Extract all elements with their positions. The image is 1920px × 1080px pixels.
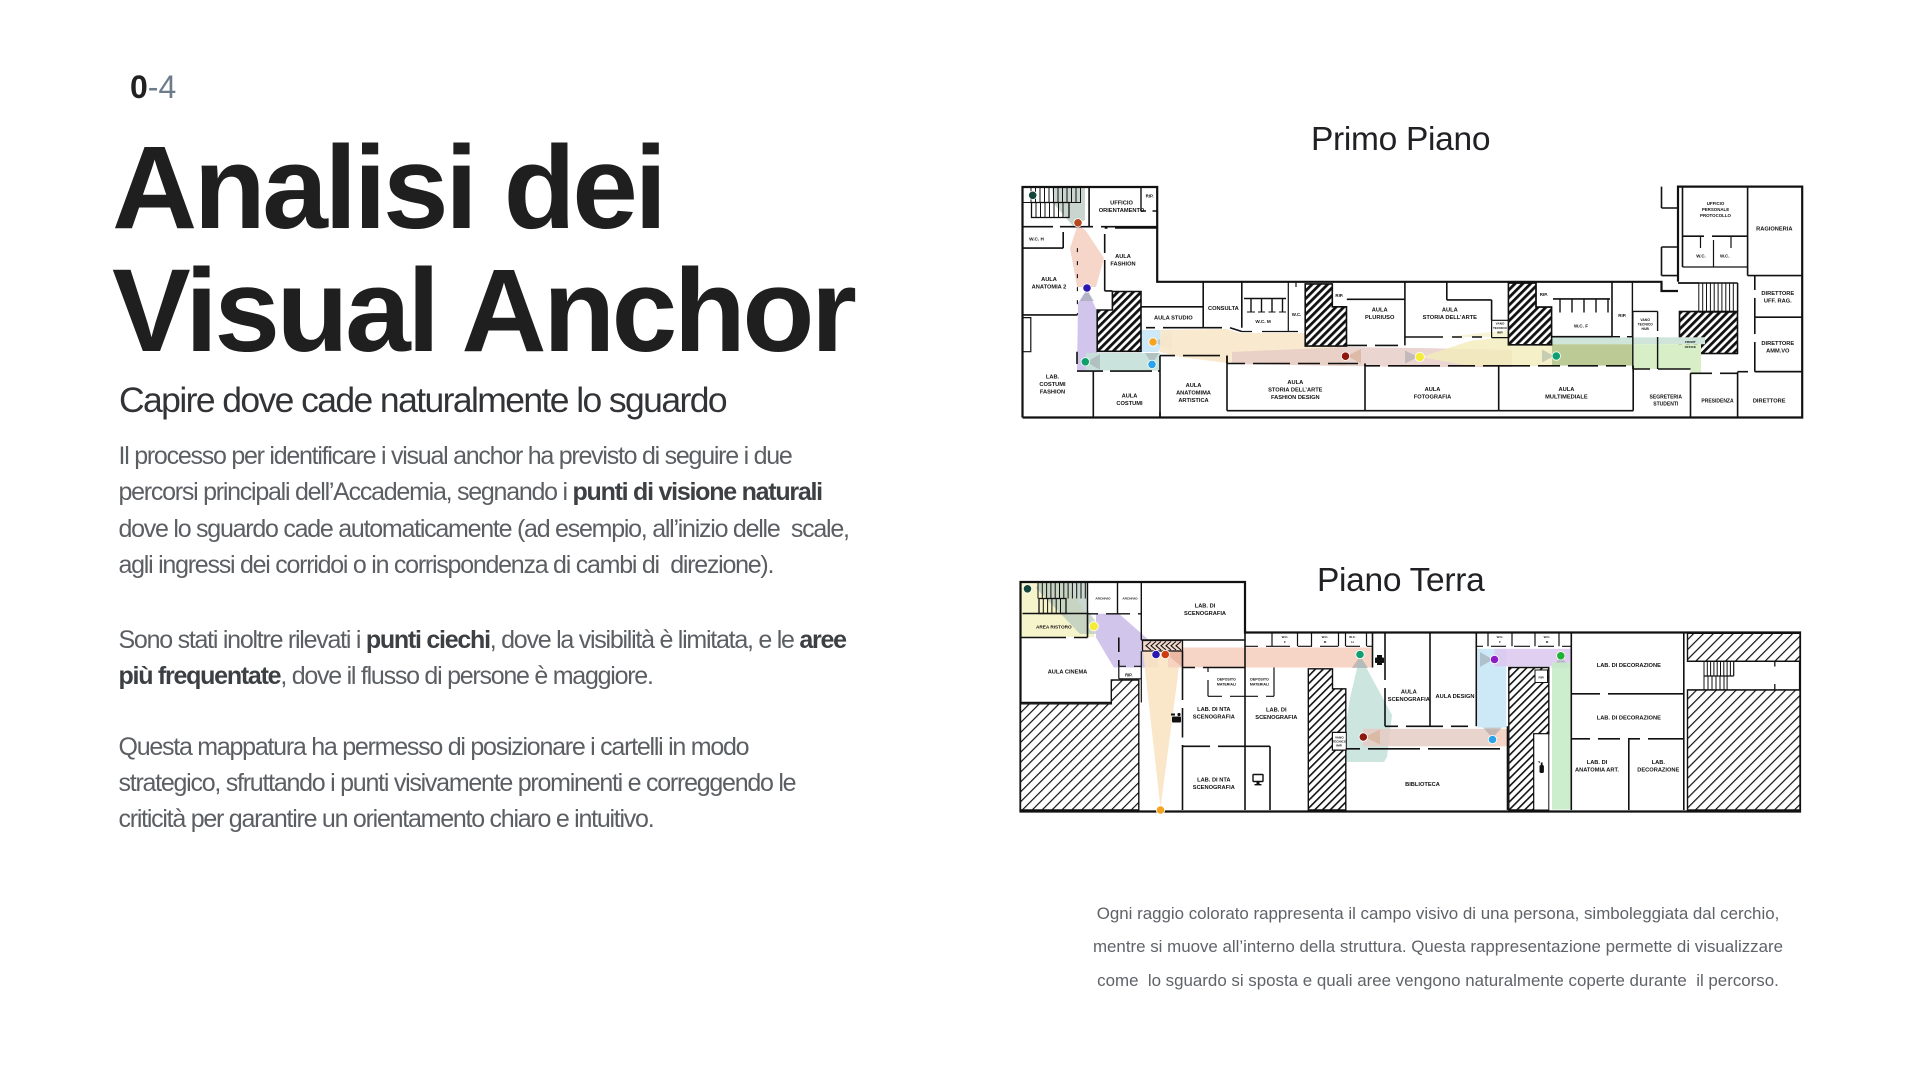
svg-text:F: F bbox=[1284, 640, 1286, 644]
svg-text:RIP.: RIP. bbox=[1538, 676, 1544, 680]
svg-text:FASHION: FASHION bbox=[1040, 390, 1065, 396]
svg-text:DIRETTORE: DIRETTORE bbox=[1761, 341, 1794, 347]
svg-text:SCENOGRAFIA: SCENOGRAFIA bbox=[1184, 611, 1226, 617]
svg-text:LAB. DI: LAB. DI bbox=[1195, 604, 1216, 610]
svg-text:LAB. DI DECORAZIONE: LAB. DI DECORAZIONE bbox=[1597, 716, 1661, 722]
svg-text:AULA: AULA bbox=[1372, 308, 1388, 314]
svg-text:HUB: HUB bbox=[1642, 327, 1650, 331]
svg-text:SEGRETERIA: SEGRETERIA bbox=[1650, 395, 1683, 401]
svg-text:COSTUMI: COSTUMI bbox=[1116, 401, 1143, 407]
svg-text:F: F bbox=[1499, 640, 1501, 644]
svg-text:IMP.: IMP. bbox=[1497, 331, 1503, 335]
svg-text:LAB. DI: LAB. DI bbox=[1587, 760, 1608, 766]
svg-text:W.C.: W.C. bbox=[1497, 635, 1504, 639]
svg-text:MULTIMEDIALE: MULTIMEDIALE bbox=[1545, 395, 1588, 401]
svg-text:FOTOGRAFIA: FOTOGRAFIA bbox=[1414, 395, 1452, 401]
svg-text:FASHION DESIGN: FASHION DESIGN bbox=[1271, 395, 1320, 401]
svg-text:UFF. RAG.: UFF. RAG. bbox=[1764, 299, 1792, 305]
svg-text:DEPOSITO: DEPOSITO bbox=[1250, 678, 1269, 682]
svg-text:ORIENTAMENTO: ORIENTAMENTO bbox=[1099, 208, 1145, 214]
svg-text:SCENOGRAFIA: SCENOGRAFIA bbox=[1255, 715, 1297, 721]
svg-text:COSTUMI: COSTUMI bbox=[1039, 382, 1066, 388]
svg-text:SCENOGRAFIA: SCENOGRAFIA bbox=[1388, 697, 1430, 703]
svg-text:W.C.: W.C. bbox=[1349, 635, 1356, 639]
svg-text:STUDENTI: STUDENTI bbox=[1653, 402, 1679, 408]
svg-text:FRONT: FRONT bbox=[1685, 340, 1696, 344]
svg-text:AULA: AULA bbox=[1425, 387, 1441, 393]
svg-text:LAB. DI NTA: LAB. DI NTA bbox=[1197, 707, 1230, 713]
svg-text:TECNICO: TECNICO bbox=[1638, 323, 1654, 327]
svg-text:STORIA DELL’ARTE: STORIA DELL’ARTE bbox=[1423, 315, 1478, 321]
svg-text:LAB. DI DECORAZIONE: LAB. DI DECORAZIONE bbox=[1597, 663, 1661, 669]
svg-text:SCENOGRAFIA: SCENOGRAFIA bbox=[1193, 785, 1235, 791]
svg-text:RIP.: RIP. bbox=[1146, 194, 1154, 199]
svg-text:STORIA DELL’ARTE: STORIA DELL’ARTE bbox=[1268, 388, 1323, 394]
svg-text:AULA CINEMA: AULA CINEMA bbox=[1048, 669, 1088, 675]
svg-text:M: M bbox=[1546, 640, 1549, 644]
svg-text:AULA: AULA bbox=[1559, 387, 1575, 393]
svg-text:VANO: VANO bbox=[1496, 322, 1505, 326]
svg-text:AULA: AULA bbox=[1122, 394, 1138, 400]
svg-text:FASHION: FASHION bbox=[1110, 262, 1135, 268]
svg-text:PLURIUSO: PLURIUSO bbox=[1365, 315, 1395, 321]
svg-text:AREA RISTORO: AREA RISTORO bbox=[1036, 624, 1072, 629]
svg-text:AULA: AULA bbox=[1401, 690, 1417, 696]
svg-text:AULA: AULA bbox=[1041, 277, 1057, 283]
svg-text:TECNICO: TECNICO bbox=[1493, 326, 1508, 330]
svg-text:W.C. H: W.C. H bbox=[1029, 237, 1044, 242]
svg-text:AMM.VO: AMM.VO bbox=[1766, 349, 1790, 355]
svg-text:AULA STUDIO: AULA STUDIO bbox=[1154, 316, 1193, 322]
svg-text:H: H bbox=[1351, 640, 1354, 644]
svg-text:BIBLIOTECA: BIBLIOTECA bbox=[1405, 782, 1440, 788]
svg-text:LAB.: LAB. bbox=[1046, 375, 1060, 381]
svg-text:IMP.: IMP. bbox=[1336, 744, 1342, 748]
svg-text:M: M bbox=[1324, 640, 1327, 644]
svg-text:RIP.: RIP. bbox=[1335, 293, 1343, 298]
svg-text:LAB. DI NTA: LAB. DI NTA bbox=[1197, 778, 1230, 784]
svg-text:RIP.: RIP. bbox=[1125, 672, 1132, 677]
svg-text:ARTISTICA: ARTISTICA bbox=[1178, 398, 1208, 404]
svg-text:PERSONALE: PERSONALE bbox=[1702, 207, 1729, 212]
svg-text:UFFICIO: UFFICIO bbox=[1110, 201, 1133, 207]
svg-text:W.C.: W.C. bbox=[1282, 635, 1289, 639]
svg-text:PROTOCOLLO: PROTOCOLLO bbox=[1700, 213, 1731, 218]
svg-text:LAB. DI: LAB. DI bbox=[1266, 708, 1287, 714]
svg-text:W.C.: W.C. bbox=[1322, 635, 1329, 639]
svg-text:ARCHIVIO: ARCHIVIO bbox=[1095, 597, 1111, 601]
svg-text:AULA: AULA bbox=[1115, 254, 1131, 260]
svg-text:VANO: VANO bbox=[1640, 318, 1650, 322]
svg-text:AULA: AULA bbox=[1442, 308, 1458, 314]
svg-text:MATERIALI: MATERIALI bbox=[1250, 683, 1269, 687]
svg-text:ARCHIVIO: ARCHIVIO bbox=[1122, 597, 1138, 601]
svg-text:RIP.: RIP. bbox=[1618, 313, 1626, 318]
svg-text:W.C. M: W.C. M bbox=[1255, 319, 1270, 324]
svg-text:CONSULTA: CONSULTA bbox=[1208, 306, 1239, 312]
svg-text:RAGIONERIA: RAGIONERIA bbox=[1756, 227, 1792, 233]
svg-text:W.C.: W.C. bbox=[1696, 254, 1706, 259]
svg-text:DIRETTORE: DIRETTORE bbox=[1761, 291, 1794, 297]
svg-text:DIRETTORE: DIRETTORE bbox=[1753, 399, 1786, 405]
svg-text:DECORAZIONE: DECORAZIONE bbox=[1637, 768, 1679, 774]
svg-text:PRESIDENZA: PRESIDENZA bbox=[1701, 399, 1734, 405]
svg-text:ANATOMIMA: ANATOMIMA bbox=[1176, 391, 1211, 397]
svg-text:MATERIALI: MATERIALI bbox=[1217, 683, 1236, 687]
svg-text:DEPOSITO: DEPOSITO bbox=[1217, 678, 1236, 682]
svg-text:LAB.: LAB. bbox=[1652, 760, 1666, 766]
svg-text:ANATOMIA 2: ANATOMIA 2 bbox=[1032, 285, 1067, 291]
svg-text:AULA DESIGN: AULA DESIGN bbox=[1436, 694, 1475, 700]
svg-text:OFFICE: OFFICE bbox=[1685, 345, 1696, 349]
svg-text:AULA: AULA bbox=[1287, 380, 1303, 386]
svg-text:RIP.: RIP. bbox=[1540, 292, 1548, 297]
svg-text:W.C.: W.C. bbox=[1544, 635, 1551, 639]
svg-text:W.C.: W.C. bbox=[1720, 254, 1730, 259]
svg-text:W.C. F: W.C. F bbox=[1574, 324, 1588, 329]
svg-text:AULA: AULA bbox=[1186, 383, 1202, 389]
svg-text:SCENOGRAFIA: SCENOGRAFIA bbox=[1193, 715, 1235, 721]
svg-text:UFFICIO: UFFICIO bbox=[1707, 201, 1725, 206]
svg-text:W.C.: W.C. bbox=[1292, 312, 1302, 317]
svg-text:ANATOMIA ART.: ANATOMIA ART. bbox=[1575, 768, 1619, 774]
